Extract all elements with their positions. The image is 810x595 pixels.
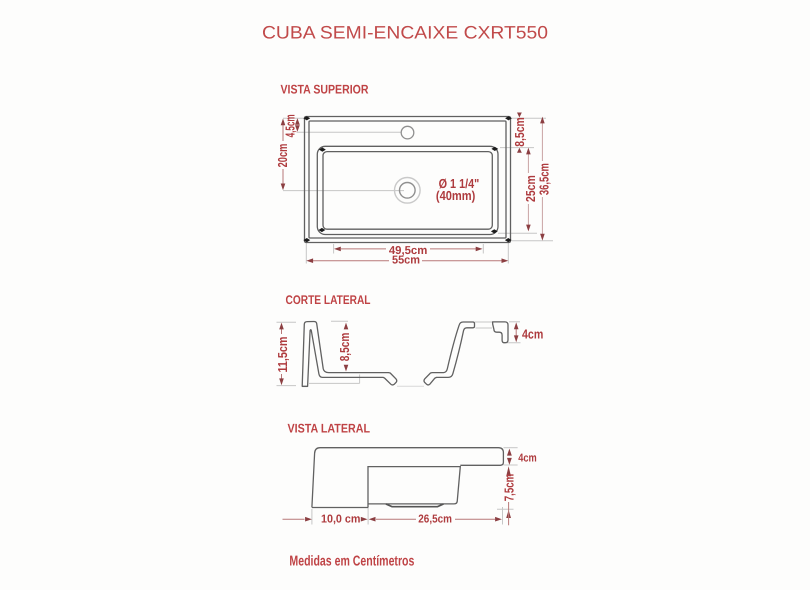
svg-text:VISTA LATERAL: VISTA LATERAL <box>288 422 371 436</box>
svg-text:Medidas em Centímetros: Medidas em Centímetros <box>289 554 414 570</box>
svg-text:7,5cm: 7,5cm <box>502 474 517 501</box>
svg-text:10,0 cm: 10,0 cm <box>321 514 360 526</box>
svg-text:36,5cm: 36,5cm <box>536 163 551 195</box>
svg-text:8,5cm: 8,5cm <box>337 333 352 362</box>
svg-text:4cm: 4cm <box>518 452 537 464</box>
svg-text:26,5cm: 26,5cm <box>418 514 452 526</box>
svg-text:55cm: 55cm <box>392 255 420 267</box>
svg-text:4,5cm: 4,5cm <box>283 114 298 137</box>
svg-text:20cm: 20cm <box>275 144 290 168</box>
svg-text:8,5cm: 8,5cm <box>512 117 527 147</box>
svg-text:VISTA SUPERIOR: VISTA SUPERIOR <box>281 83 369 97</box>
svg-text:CUBA SEMI-ENCAIXE CXRT550: CUBA SEMI-ENCAIXE CXRT550 <box>262 23 548 43</box>
svg-text:CORTE LATERAL: CORTE LATERAL <box>286 293 371 307</box>
svg-text:(40mm): (40mm) <box>436 188 475 203</box>
svg-text:4cm: 4cm <box>522 327 543 342</box>
svg-text:11,5cm: 11,5cm <box>275 337 290 373</box>
